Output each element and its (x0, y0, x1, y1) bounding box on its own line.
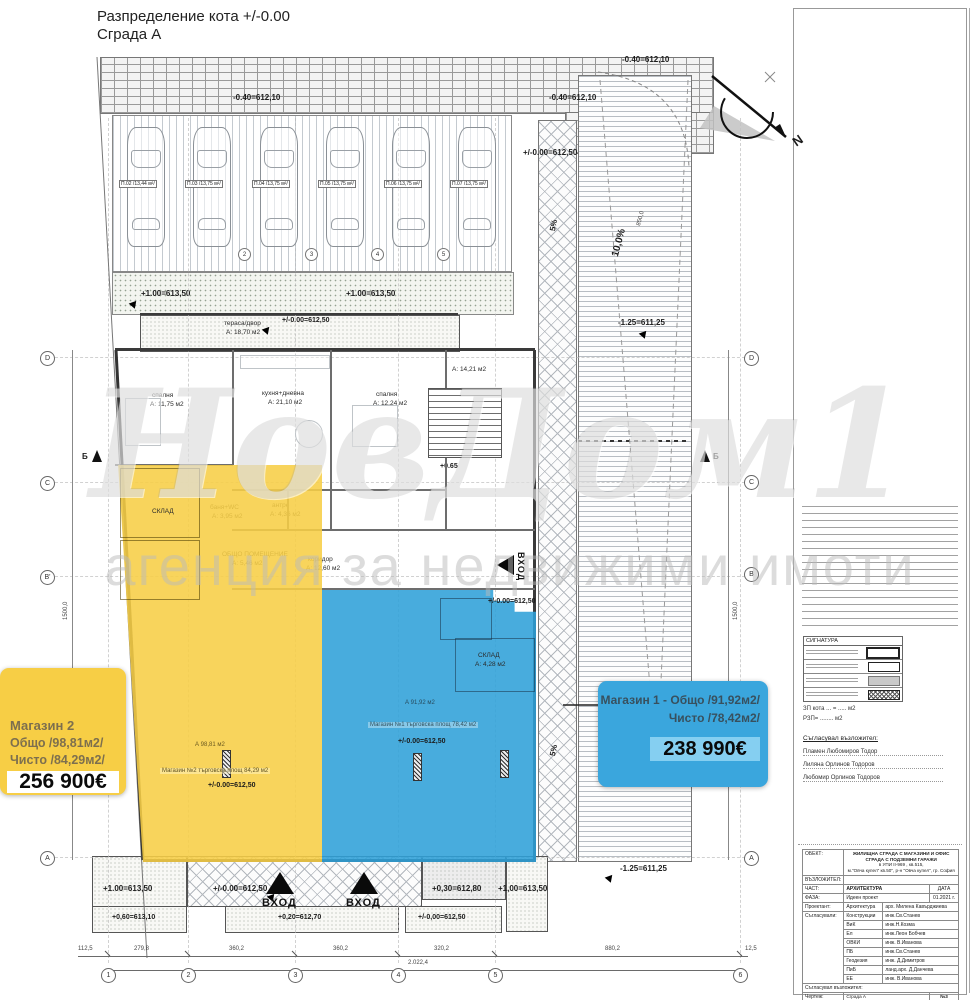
legend-row (804, 674, 902, 688)
planter-right (506, 856, 548, 932)
dim-3: 360,2 (333, 946, 348, 952)
elev-bottom-left: +1.00=613,50 (103, 884, 152, 893)
partition-8 (232, 588, 535, 590)
dim-5: 880,2 (605, 946, 620, 952)
panel-divider (798, 844, 962, 845)
partition-6 (287, 489, 289, 531)
tb-row-discipline: Конструкции (844, 911, 883, 920)
shop2-price-card: Магазин 2 Общо /98,81м2/ Чисто /84,29м2/… (0, 668, 126, 795)
elev-terrace: +/-0.00=612,50 (282, 317, 330, 324)
kitchen-counter (240, 355, 330, 369)
drawing-subtitle: Сграда А (97, 26, 161, 43)
dim-2: 360,2 (229, 946, 244, 952)
grid-line-A (55, 857, 755, 858)
shop1-area-label: А 91,92 м2 (405, 700, 435, 706)
legend-table: СИГНАТУРА (803, 636, 903, 702)
tb-row-name: инж.Леон Бобчев (883, 929, 959, 938)
partition-4 (115, 464, 233, 466)
grid-line-1 (108, 118, 109, 963)
rzp-text: РЗП= ........ м2 (803, 716, 842, 722)
legend-row (804, 688, 902, 701)
grid-bubble-5: 5 (488, 968, 503, 983)
elev-top-mid: -0.40=612,10 (549, 93, 596, 102)
wall-right (533, 350, 536, 862)
tb-row-name: инж. В.Иванова (883, 974, 959, 983)
shop2-card-price: 256 900€ (7, 771, 119, 793)
elev-ramp-low: -1.25=611,25 (620, 864, 667, 873)
shop1-card-net: Чисто /78,42м2/ (669, 711, 760, 725)
tb-row-name: ланд.арх. Д.Данчева (883, 965, 959, 974)
parking-spot-label: П.05 /13,75 м²/ (318, 180, 356, 188)
entry-landing (422, 856, 506, 900)
room-terrace-area: А: 18,70 м2 (226, 329, 260, 336)
tb-client-label: ВЪЗЛОЖИТЕЛ: (803, 875, 844, 884)
entry-walkway (187, 856, 422, 907)
ramp-break-line (578, 440, 690, 442)
legend-swatch-wall (866, 647, 900, 659)
elev-bottom-right: +1,00=613,50 (498, 884, 547, 893)
grid-bubble-3: 3 (288, 968, 303, 983)
terrace-wall (140, 313, 458, 315)
partition-7 (232, 529, 535, 531)
side-entrance-label: ВХОД (516, 552, 526, 581)
room-store2-name: склад (152, 508, 174, 515)
parking-spot-label: П.03 /13,75 м²/ (185, 180, 223, 188)
parking-spot-label: П.02 /13,44 м²/ (119, 180, 157, 188)
tb-date-value: 01.2021 г. (930, 893, 959, 902)
room-store1-name: склад (478, 652, 500, 659)
grid-bubble-C-right: C (744, 475, 759, 490)
elev-curb-right: +/-0,00=612,50 (418, 914, 466, 921)
grid-line-5 (495, 118, 496, 963)
column-2 (413, 753, 422, 781)
legend-swatch-hatch (868, 690, 900, 700)
grid-bubble-A-right: A (744, 851, 759, 866)
partition-1 (232, 350, 234, 465)
side-entrance-arrow (497, 555, 514, 575)
tb-row-name: инж.Св.Станев (883, 911, 959, 920)
dim-total: 2.022,4 (408, 960, 428, 966)
parking-number: 5 (437, 248, 450, 261)
tb-row-discipline: ПБ (844, 947, 883, 956)
approved-name-1: Пламен Любомиров Тодор (803, 749, 943, 756)
room-common-name: общо помещение (222, 551, 288, 558)
parking-spot-label: П.07 /13,75 м²/ (450, 180, 488, 188)
shop2-card-title: Магазин 2 (10, 718, 74, 733)
tb-object-line: м."Овча купел" кв.50", р-н "Овча купел",… (846, 868, 956, 874)
bed-1 (125, 398, 161, 446)
dim-6: 12,5 (745, 946, 757, 952)
title-block-table: ОБЕКТ: ЖИЛИЩНА СГРАДА С МАГАЗИНИ И ОФИС … (802, 849, 959, 1000)
staircase (428, 388, 502, 458)
room-store1-area: А: 4,28 м2 (475, 661, 506, 668)
room-corridor-name: коридор (308, 556, 333, 563)
room-kitchen-area: А: 21,10 м2 (268, 399, 302, 406)
shop1-wc (440, 598, 492, 640)
dim-right-v: 1500,0 (733, 602, 739, 620)
elev-curb-mid: +0,20=612,70 (278, 914, 321, 921)
approved-title: Съгласувал възложител: (803, 735, 878, 742)
tb-row-name: арх. Милена Кавърджиева (883, 902, 959, 911)
tb-drawing-label: Чертеж: (803, 992, 844, 1000)
parking-number: 2 (238, 248, 251, 261)
entrance-label-1: ВХОД (262, 897, 297, 909)
tb-date-label: ДАТА (930, 884, 959, 893)
room-corridor-area: А: 12,60 м2 (306, 565, 340, 572)
grid-bubble-C-left: C (40, 476, 55, 491)
wall-bottom (143, 859, 536, 862)
elev-stair: +0.65 (440, 463, 458, 470)
bed-2 (352, 405, 398, 447)
shop1-card-title: Магазин 1 - Общо /91,92м2/ (600, 693, 760, 707)
grid-bubble-4: 4 (391, 968, 406, 983)
tb-phase-value: Идеен проект (844, 893, 930, 902)
tb-designer-label: Проектант: (803, 902, 844, 911)
shop2-band-label: Магазин №2 търговска площ 84,29 м2 (160, 768, 270, 774)
grid-bubble-6: 6 (733, 968, 748, 983)
wall-top (115, 348, 535, 351)
grid-bubble-B-right: B (744, 567, 759, 582)
grid-line-D (55, 357, 755, 358)
title-block-panel: СИГНАТУРА ЗП кота ... = ..... м2 РЗП= ..… (793, 8, 967, 995)
room-bath-name: баня+WC (210, 504, 239, 511)
column-3 (500, 750, 509, 778)
legend-swatch-fill (868, 676, 900, 686)
tb-row-discipline: Ел (844, 929, 883, 938)
approved-name-2: Лиляна Орлинов Тодоров (803, 762, 943, 769)
tb-object-line: ЖИЛИЩНА СГРАДА С МАГАЗИНИ И ОФИС (846, 851, 956, 857)
grid-bubble-D-right: D (744, 351, 759, 366)
parking-number: 4 (371, 248, 384, 261)
dim-0: 112,5 (78, 946, 93, 952)
room-stair-area: А: 14,21 м2 (452, 366, 486, 373)
tb-row-discipline: ОВКИ (844, 938, 883, 947)
drawing-sheet: Разпределение кота +/-0.00 Сграда А (0, 0, 973, 1000)
elev-garden-right: +1.00=613,50 (346, 289, 395, 298)
tb-object-label: ОБЕКТ: (803, 850, 844, 876)
approved-name-3: Любомир Орлинов Тодоров (803, 775, 943, 782)
drawing-title: Разпределение кота +/-0.00 (97, 8, 290, 25)
grid-bubble-B-left: B' (40, 570, 55, 585)
grid-bubble-2: 2 (181, 968, 196, 983)
dimension-line (78, 956, 748, 957)
shop2-card-net: Чисто /84,29м2/ (10, 753, 105, 767)
shop2-area-label: А 98,81 м2 (195, 742, 225, 748)
tb-row-name: инж.Св.Станев (883, 947, 959, 956)
parking-number: 3 (305, 248, 318, 261)
dim-1: 279,8 (134, 946, 149, 952)
shop1-card-price: 238 990€ (650, 737, 760, 761)
grid-line-3 (295, 118, 296, 963)
grid-line-6 (740, 118, 741, 963)
grid-bubble-A-left: A (40, 851, 55, 866)
elev-ramp-upper: +/-0.00=612,50 (523, 148, 577, 157)
section-marker-right: Б (713, 452, 719, 461)
legend-row (804, 660, 902, 674)
tb-row-name: инж. В.Иванова (883, 938, 959, 947)
tb-row-name: инж. Д.Димитров (883, 956, 959, 965)
dim-4: 320,2 (434, 946, 449, 952)
dining-table (295, 420, 323, 448)
shop2-card-gross: Общо /98,81м2/ (10, 736, 103, 750)
grid-bubble-D-left: D (40, 351, 55, 366)
tb-row-discipline: ЕЕ (844, 974, 883, 983)
partition-2 (330, 350, 332, 530)
tb-part-value: АРХИТЕКТУРА (844, 884, 930, 893)
room-bedroom2-name: спалня (376, 391, 397, 398)
tb-client-sign: Съгласувал възложител: (803, 983, 959, 992)
section-marker-left: Б (82, 452, 88, 461)
room-terrace-name: тераса/двор (224, 320, 261, 327)
elev-garden-left: +1.00=613,50 (141, 289, 190, 298)
room-bath-area: А: 3,95 м2 (212, 513, 243, 520)
tb-coord-label: Съгласували: (803, 911, 844, 983)
notes-text-block (802, 506, 958, 628)
elev-curb-left: +0,60=613,10 (112, 914, 155, 921)
tb-row-name: инж.Н.Козма (883, 920, 959, 929)
elev-bottom-walk: +/-0.00=612,50 (213, 884, 267, 893)
shop1-price-card: Магазин 1 - Общо /91,92м2/ Чисто /78,42м… (598, 681, 768, 787)
tb-part-label: ЧАСТ: (803, 884, 844, 893)
grid-bubble-1: 1 (101, 968, 116, 983)
parking-spot-label: П.04 /13,75 м²/ (252, 180, 290, 188)
room-common-area: А: 5,46 м2 (232, 560, 263, 567)
room-kitchen-name: кухня+дневна (262, 390, 304, 397)
parking-spot-label: П.06 /13,75 м²/ (384, 180, 422, 188)
shop2-wc (120, 540, 200, 600)
shop1-band-label: Магазин №1 търговска площ 78,42 м2 (368, 722, 478, 728)
elev-top-left: -0.40=612,10 (233, 93, 280, 102)
tb-row-discipline: Архитектура (844, 902, 883, 911)
dim-left-v: 1500,0 (63, 602, 69, 620)
entrance-arrow-2 (350, 872, 378, 894)
entrance-arrow-1 (266, 872, 294, 894)
legend-swatch-partition (868, 662, 900, 672)
sheet-edge (969, 8, 970, 993)
shop2-storage-room (120, 468, 200, 538)
tb-row-discipline: ПиБ (844, 965, 883, 974)
elev-shop2: +/-0.00=612,50 (208, 782, 256, 789)
partition-5 (232, 489, 447, 491)
tb-row-discipline: ВиК (844, 920, 883, 929)
legend-row (804, 646, 902, 660)
tb-row-discipline: Геодезия (844, 956, 883, 965)
entrance-label-2: ВХОД (346, 897, 381, 909)
elev-side-entry: +/-0.00=612,50 (488, 598, 536, 605)
dimension-total-line (108, 970, 746, 971)
zp-text: ЗП кота ... = ..... м2 (803, 706, 856, 712)
elev-top-right: -0.40=612,10 (622, 55, 669, 64)
elev-shop1: +/-0.00=612,50 (398, 738, 446, 745)
survey-marker (605, 872, 616, 883)
elev-bottom-mid: +0,30=612,80 (432, 884, 481, 893)
tb-phase-label: ФАЗА: (803, 893, 844, 902)
elev-ramp-mid: -1.25=611,25 (618, 318, 665, 327)
legend-title: СИГНАТУРА (804, 637, 902, 646)
